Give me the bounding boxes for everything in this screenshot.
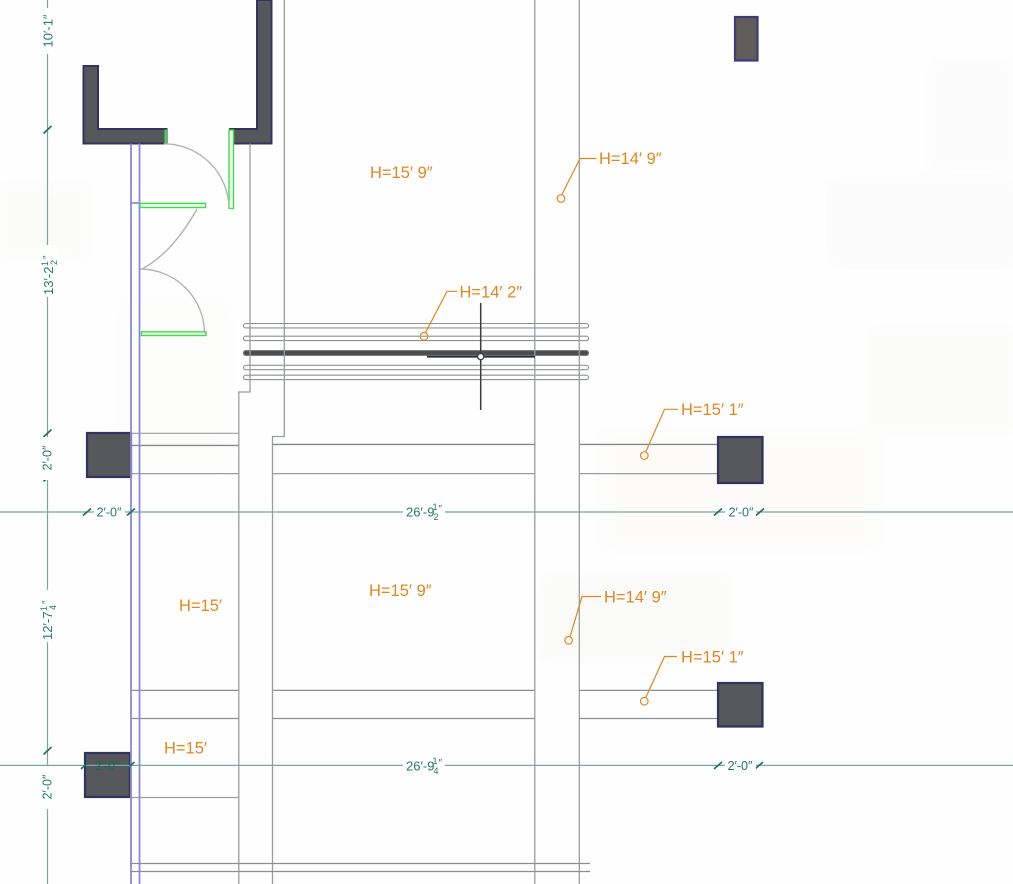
svg-text:H=14′ 9″: H=14′ 9″ bbox=[599, 150, 662, 168]
svg-text:2′-0″: 2′-0″ bbox=[40, 445, 54, 470]
svg-text:2′-0″: 2′-0″ bbox=[95, 759, 120, 773]
svg-text:4: 4 bbox=[48, 605, 58, 610]
svg-text:2′-0″: 2′-0″ bbox=[728, 759, 753, 773]
svg-text:2′-0″: 2′-0″ bbox=[729, 506, 754, 520]
svg-text:″: ″ bbox=[439, 504, 443, 515]
svg-text:2′-0″: 2′-0″ bbox=[40, 774, 54, 799]
svg-text:H=14′ 9″: H=14′ 9″ bbox=[604, 589, 667, 607]
svg-text:H=15′ 9″: H=15′ 9″ bbox=[370, 164, 433, 182]
svg-text:2: 2 bbox=[49, 260, 59, 265]
svg-text:″: ″ bbox=[41, 600, 52, 604]
svg-text:26′-9: 26′-9 bbox=[406, 505, 434, 520]
svg-text:10′-1″: 10′-1″ bbox=[40, 14, 55, 47]
svg-text:12′-7: 12′-7 bbox=[40, 612, 55, 640]
svg-text:1: 1 bbox=[433, 502, 438, 512]
svg-text:H=15′ 1″: H=15′ 1″ bbox=[681, 649, 744, 667]
svg-text:H=15′ 9″: H=15′ 9″ bbox=[369, 582, 432, 600]
svg-text:1: 1 bbox=[433, 756, 438, 766]
svg-text:H=15′: H=15′ bbox=[164, 740, 207, 758]
svg-text:H=14′ 2″: H=14′ 2″ bbox=[460, 283, 523, 301]
svg-text:2′-0″: 2′-0″ bbox=[97, 506, 122, 520]
svg-text:″: ″ bbox=[42, 255, 53, 259]
svg-text:H=15′: H=15′ bbox=[179, 597, 222, 615]
svg-text:H=15′ 1″: H=15′ 1″ bbox=[681, 401, 744, 419]
svg-text:13′-2: 13′-2 bbox=[41, 267, 56, 295]
svg-text:26′-9: 26′-9 bbox=[406, 759, 434, 774]
svg-text:″: ″ bbox=[439, 758, 443, 769]
